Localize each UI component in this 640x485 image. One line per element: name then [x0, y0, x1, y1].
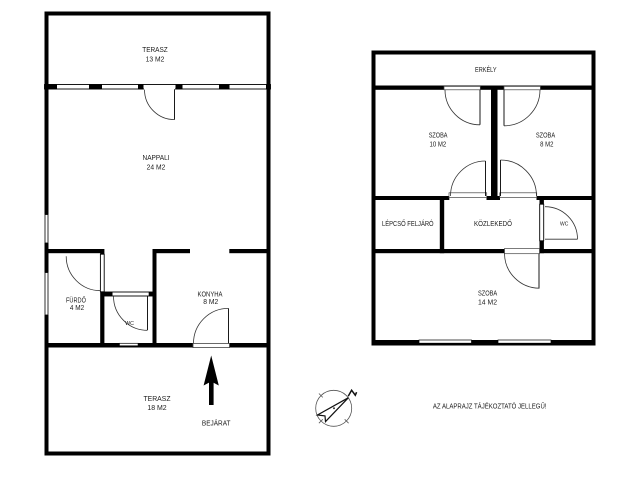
svg-text:13 M2: 13 M2: [146, 55, 165, 64]
svg-text:AZ ALAPRAJZ TÁJÉKOZTATÓ JELLEG: AZ ALAPRAJZ TÁJÉKOZTATÓ JELLEGŰ!: [433, 402, 547, 411]
svg-text:24 M2: 24 M2: [147, 163, 166, 172]
svg-text:ERKÉLY: ERKÉLY: [475, 65, 497, 74]
svg-text:18 M2: 18 M2: [147, 403, 166, 412]
svg-text:8 M2: 8 M2: [203, 297, 218, 306]
svg-text:NAPPALI: NAPPALI: [143, 153, 170, 162]
svg-text:14 M2: 14 M2: [478, 298, 497, 307]
svg-text:WC: WC: [125, 321, 134, 327]
svg-text:KÖZLEKEDŐ: KÖZLEKEDŐ: [474, 219, 512, 228]
svg-text:8 M2: 8 M2: [540, 140, 553, 149]
svg-text:4 M2: 4 M2: [70, 303, 84, 312]
svg-text:LÉPCSŐ FELJÁRÓ: LÉPCSŐ FELJÁRÓ: [382, 219, 434, 228]
svg-text:SZOBA: SZOBA: [478, 289, 497, 298]
svg-text:SZOBA: SZOBA: [536, 131, 555, 140]
svg-text:TERASZ: TERASZ: [142, 45, 168, 54]
svg-text:SZOBA: SZOBA: [429, 131, 448, 140]
svg-text:10 M2: 10 M2: [430, 140, 447, 149]
svg-text:WC: WC: [560, 222, 568, 228]
svg-text:BEJÁRAT: BEJÁRAT: [202, 419, 231, 428]
svg-text:TERASZ: TERASZ: [144, 394, 172, 403]
